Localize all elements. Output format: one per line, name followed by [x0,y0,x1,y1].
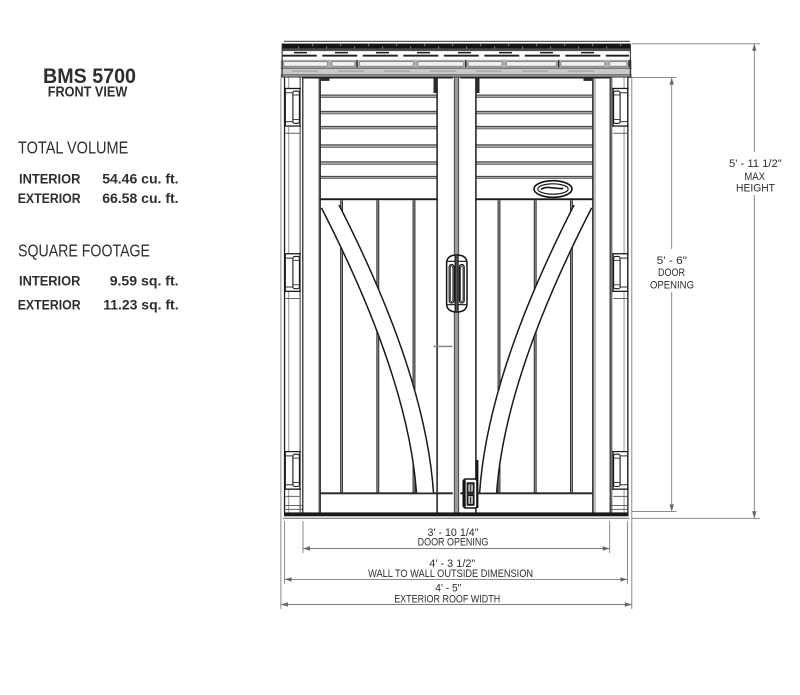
svg-text:54.46 cu. ft.: 54.46 cu. ft. [102,172,178,188]
svg-text:MAX: MAX [744,171,765,183]
svg-text:EXTERIOR: EXTERIOR [18,297,81,313]
svg-text:5' - 6": 5' - 6" [657,255,688,267]
svg-text:5' - 11 1/2": 5' - 11 1/2" [729,158,782,170]
svg-text:HEIGHT: HEIGHT [736,183,775,195]
svg-text:OPENING: OPENING [650,280,694,292]
svg-text:EXTERIOR: EXTERIOR [18,191,81,207]
svg-text:DOOR: DOOR [658,267,685,279]
svg-text:11.23 sq. ft.: 11.23 sq. ft. [103,297,178,313]
svg-text:DOOR OPENING: DOOR OPENING [418,537,489,549]
svg-text:INTERIOR: INTERIOR [19,274,80,290]
svg-text:EXTERIOR ROOF WIDTH: EXTERIOR ROOF WIDTH [394,594,500,606]
svg-text:INTERIOR: INTERIOR [19,172,80,188]
svg-text:WALL TO WALL OUTSIDE DIMENSION: WALL TO WALL OUTSIDE DIMENSION [368,568,533,580]
svg-text:66.58 cu. ft.: 66.58 cu. ft. [102,191,178,207]
svg-text:9.59 sq. ft.: 9.59 sq. ft. [110,274,179,290]
svg-text:SQUARE FOOTAGE: SQUARE FOOTAGE [18,240,150,260]
svg-text:FRONT VIEW: FRONT VIEW [48,84,128,101]
svg-text:TOTAL VOLUME: TOTAL VOLUME [18,138,128,158]
